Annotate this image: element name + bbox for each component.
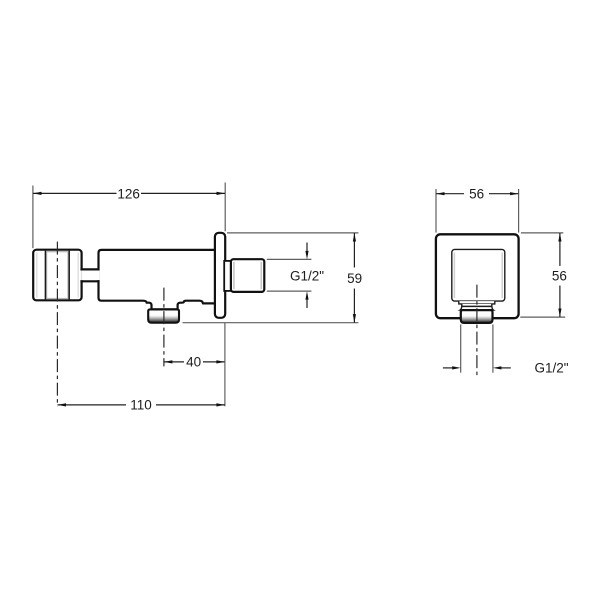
svg-text:59: 59	[347, 271, 362, 286]
svg-text:110: 110	[130, 398, 152, 413]
svg-text:G1/2": G1/2"	[290, 268, 324, 283]
svg-text:56: 56	[469, 187, 484, 202]
svg-text:126: 126	[117, 187, 140, 202]
svg-text:40: 40	[186, 355, 201, 370]
svg-text:56: 56	[552, 269, 567, 284]
svg-text:G1/2": G1/2"	[534, 360, 568, 375]
